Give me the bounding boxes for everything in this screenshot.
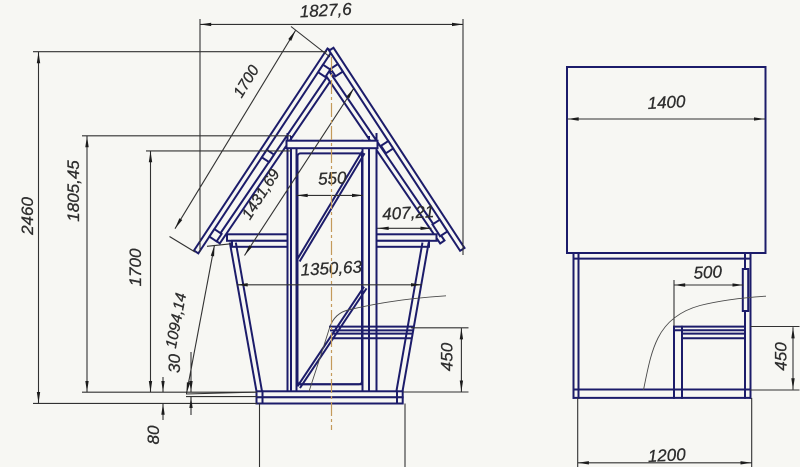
svg-text:450: 450 (438, 342, 457, 371)
svg-text:407,21: 407,21 (382, 202, 435, 224)
svg-text:1827,6: 1827,6 (299, 0, 352, 21)
svg-text:1400: 1400 (647, 92, 686, 113)
svg-text:30: 30 (165, 354, 184, 373)
svg-text:450: 450 (772, 342, 791, 371)
svg-text:80: 80 (144, 425, 163, 444)
svg-text:1200: 1200 (647, 445, 686, 466)
svg-text:500: 500 (693, 262, 723, 282)
svg-text:1805,45: 1805,45 (64, 160, 83, 222)
svg-text:1700: 1700 (126, 248, 145, 286)
svg-text:550: 550 (318, 168, 348, 188)
svg-text:2460: 2460 (18, 197, 37, 236)
